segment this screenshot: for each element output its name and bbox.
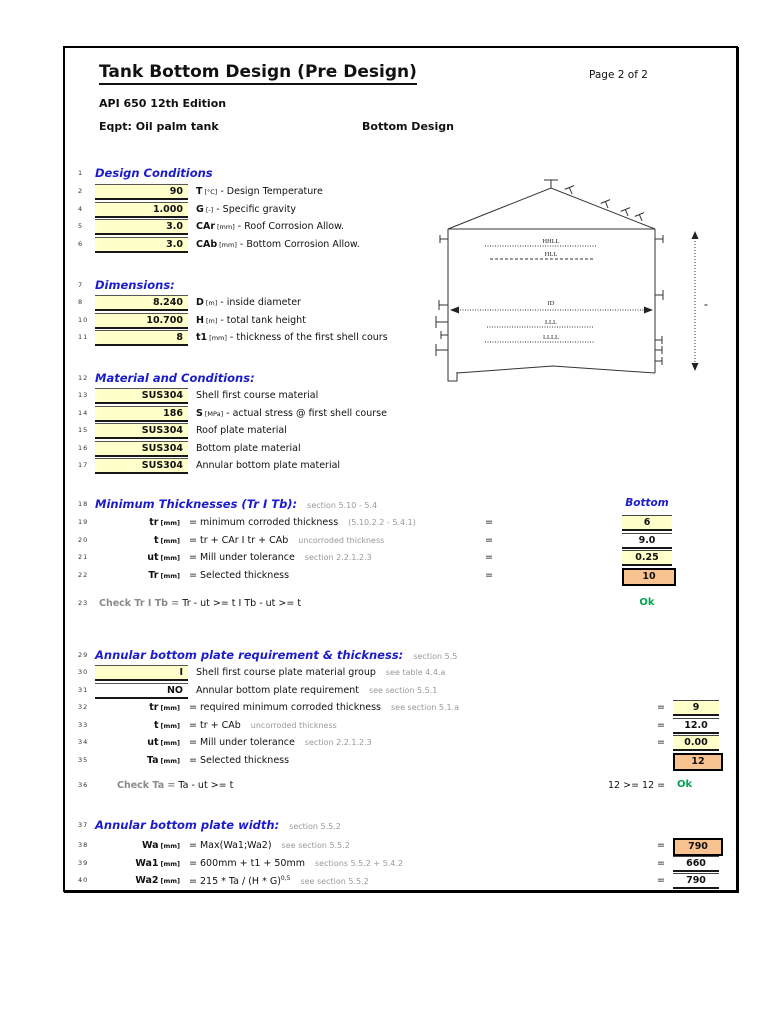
equation-text: = Selected thickness [189, 755, 289, 766]
line-number: 18 [78, 500, 88, 508]
equation-text: = minimum corroded thickness(5.10.2.2 - … [189, 517, 416, 528]
input-cell-inside-diameter[interactable]: 8.240 [95, 295, 188, 311]
page-frame: Tank Bottom Design (Pre Design) Page 2 o… [63, 46, 738, 892]
unit-label: [mm] [161, 757, 181, 765]
section-header-min-thickness: 18 Minimum Thicknesses (Tr I Tb):section… [65, 497, 736, 514]
reference-note: see section 5.1.a [391, 703, 459, 712]
equals-sign: = [657, 737, 665, 748]
equals-sign: = [485, 535, 493, 546]
line-number: 1 [78, 169, 83, 177]
line-number: 30 [78, 668, 88, 676]
table-row: 15 SUS304 Roof plate material [65, 423, 736, 440]
shell-nozzle-icon [439, 300, 448, 310]
reference-note: see section 5.5.2 [282, 841, 350, 850]
variable-name: Wa[mm] [65, 840, 183, 851]
line-number: 7 [78, 281, 83, 289]
section-heading: Material and Conditions: [95, 371, 255, 385]
description-text: - Specific gravity [216, 204, 296, 215]
description-text: - thickness of the first shell cours [230, 332, 388, 343]
shell-nozzle-icon [655, 235, 663, 243]
input-cell-material-group[interactable]: I [95, 665, 188, 681]
unit-label: [mm] [161, 537, 181, 545]
check-row: 23 Check Tr I Tb = Tr - ut >= t I Tb - u… [65, 596, 736, 613]
input-cell-bottom-corrosion[interactable]: 3.0 [95, 237, 188, 253]
arrowhead [692, 363, 699, 371]
diagram-label-hhll: HHLL [542, 238, 559, 245]
reference-note: see section 5.5.1 [369, 686, 437, 695]
tank-bottom-plate [457, 366, 655, 373]
reference-note: section 2.2.1.2.3 [305, 738, 372, 747]
calc-row: 38 Wa[mm] = Max(Wa1;Wa2)see section 5.5.… [65, 838, 736, 855]
unit-label: [mm] [161, 704, 181, 712]
unit-label: [MPa] [205, 410, 223, 418]
equation-text: = 600mm + t1 + 50mmsections 5.5.2 + 5.4.… [189, 858, 403, 869]
result-cell-t-annular: 12.0 [673, 718, 719, 734]
line-number: 17 [78, 461, 88, 469]
result-cell-t: 9.0 [622, 533, 672, 549]
line-number: 36 [78, 781, 88, 789]
variable-name: t[mm] [65, 720, 183, 731]
status-ok: Ok [677, 779, 692, 790]
section-header-annular-req: 29 Annular bottom plate requirement & th… [65, 648, 736, 665]
comparison-text: 12 >= 12 = [608, 780, 665, 791]
arrowhead [692, 231, 699, 239]
table-row: 14 186 S[MPa]- actual stress @ first she… [65, 406, 736, 423]
variable-name: Tr[mm] [65, 570, 183, 581]
selected-thickness-cell[interactable]: 10 [622, 568, 676, 586]
equipment-label: Eqpt: Oil palm tank [99, 120, 219, 133]
input-cell-shell-material[interactable]: SUS304 [95, 388, 188, 404]
line-number: 13 [78, 391, 88, 399]
input-cell-design-temperature[interactable]: 90 [95, 184, 188, 200]
calc-row: 33 t[mm] = tr + CAbuncorroded thickness … [65, 718, 736, 735]
shell-nozzle-icon [440, 235, 448, 243]
section-heading: Annular bottom plate requirement & thick… [95, 648, 457, 662]
variable-name: Ta[mm] [65, 755, 183, 766]
diagram-label-id: ID [548, 300, 555, 307]
row-description: CAr[mm]- Roof Corrosion Allow. [196, 221, 344, 232]
arrowhead [644, 307, 653, 314]
line-number: 15 [78, 426, 88, 434]
result-cell-wa1: 660 [673, 856, 719, 872]
result-cell-ut-annular: 0.00 [673, 735, 719, 751]
row-description: CAb[mm]- Bottom Corrosion Allow. [196, 239, 360, 250]
reference-note: see section 5.5.2 [300, 877, 368, 886]
equation-text: = Selected thickness [189, 570, 289, 581]
status-ok: Ok [622, 597, 672, 608]
variable-name: Wa2[mm] [65, 875, 183, 886]
shell-nozzle-icon [655, 346, 662, 354]
equation-text: = tr + CAr I tr + CAbuncorroded thicknes… [189, 535, 384, 546]
input-cell-roof-corrosion[interactable]: 3.0 [95, 219, 188, 235]
result-cell-annular-required: NO [95, 683, 188, 699]
calc-row: 20 t[mm] = tr + CAr I tr + CAbuncorroded… [65, 533, 736, 550]
calc-row: 35 Ta[mm] = Selected thickness 12 [65, 753, 736, 770]
variable-name: tr[mm] [65, 702, 183, 713]
selected-thickness-cell-annular[interactable]: 12 [673, 753, 723, 771]
row-description: Shell first course plate material groups… [196, 667, 445, 678]
variable-name: CAr [196, 221, 215, 232]
unit-label: [mm] [161, 860, 181, 868]
result-cell-tr-annular: 9 [673, 700, 719, 716]
variable-name: ut[mm] [65, 552, 183, 563]
arrowhead [450, 307, 459, 314]
row-description: Bottom plate material [196, 443, 301, 454]
shell-nozzle-icon [436, 344, 448, 356]
standard-label: API 650 12th Edition [99, 97, 226, 110]
variable-name: tr[mm] [65, 517, 183, 528]
diagram-label-hll: HLL [545, 251, 558, 258]
line-number: 8 [78, 298, 83, 306]
shell-nozzle-icon [436, 316, 448, 328]
row-description: Shell first course material [196, 390, 318, 401]
line-number: 12 [78, 374, 88, 382]
column-header-bottom: Bottom [622, 497, 672, 509]
section-note: section 5.5.2 [289, 822, 341, 831]
description-text: - Roof Corrosion Allow. [238, 221, 344, 232]
line-number: 31 [78, 686, 88, 694]
page-title: Tank Bottom Design (Pre Design) [99, 62, 417, 85]
shell-nozzle-icon [655, 336, 662, 344]
calc-row: 40 Wa2[mm] = 215 * Ta / (H * G)0,5see se… [65, 873, 736, 890]
unit-label: [°C] [204, 188, 217, 196]
diagram-label-lll: LLL [545, 319, 557, 326]
shell-nozzle-icon [655, 290, 663, 300]
description-text: - actual stress @ first shell course [226, 408, 387, 419]
input-cell-actual-stress[interactable]: 186 [95, 406, 188, 422]
table-row: 13 SUS304 Shell first course material [65, 388, 736, 405]
line-number: 37 [78, 821, 88, 829]
row-description: Roof plate material [196, 425, 287, 436]
variable-name: CAb [196, 239, 217, 250]
description-text: - Design Temperature [220, 186, 322, 197]
section-heading: Dimensions: [95, 278, 175, 292]
equals-sign: = [657, 702, 665, 713]
section-note: section 5.5 [413, 652, 457, 661]
variable-name: D [196, 297, 204, 308]
calc-row: 39 Wa1[mm] = 600mm + t1 + 50mmsections 5… [65, 856, 736, 873]
unit-label: [mm] [161, 554, 181, 562]
page-number: Page 2 of 2 [589, 69, 648, 81]
line-number: 2 [78, 187, 83, 195]
equals-sign: = [657, 840, 665, 851]
row-description: D[m]- inside diameter [196, 297, 301, 308]
description-text: Annular bottom plate material [196, 460, 340, 471]
result-cell-ut: 0.25 [622, 550, 672, 566]
section-heading: Minimum Thicknesses (Tr I Tb):section 5.… [95, 497, 377, 511]
sheet-subtitle: Bottom Design [362, 120, 454, 133]
result-cell-wa2: 790 [673, 873, 719, 889]
row-description: G[-]- Specific gravity [196, 204, 296, 215]
unit-label: [mm] [161, 739, 181, 747]
variable-name: t[mm] [65, 535, 183, 546]
equals-sign: = [485, 552, 493, 563]
variable-name: H [196, 315, 204, 326]
check-formula: Check Ta = Ta - ut >= t [117, 780, 233, 791]
equation-text: = Mill under tolerancesection 2.2.1.2.3 [189, 737, 372, 748]
roof-nozzle-icon [544, 180, 558, 188]
unit-label: [m] [206, 317, 217, 325]
result-cell-wa[interactable]: 790 [673, 838, 723, 856]
table-row: 16 SUS304 Bottom plate material [65, 441, 736, 458]
section-note: section 5.10 - 5.4 [307, 501, 377, 510]
equation-text: = Max(Wa1;Wa2)see section 5.5.2 [189, 840, 350, 851]
unit-label: [-] [206, 206, 213, 214]
table-row: 30 I Shell first course plate material g… [65, 665, 736, 682]
table-row: 31 NO Annular bottom plate requirementse… [65, 683, 736, 700]
unit-label: [mm] [219, 241, 237, 249]
description-text: Roof plate material [196, 425, 287, 436]
equals-sign: = [657, 858, 665, 869]
line-number: 14 [78, 409, 88, 417]
shell-nozzle-icon [441, 331, 448, 339]
check-formula: Check Tr I Tb = Tr - ut >= t I Tb - ut >… [99, 598, 301, 609]
section-heading: Annular bottom plate width:section 5.5.2 [95, 818, 341, 832]
tank-bottom-notch [448, 367, 457, 381]
unit-label: [mm] [161, 572, 181, 580]
equals-sign: = [485, 517, 493, 528]
reference-note: see table 4.4.a [386, 668, 446, 677]
description-text: - inside diameter [220, 297, 301, 308]
equation-text: = tr + CAbuncorroded thickness [189, 720, 337, 731]
equation-text: = required minimum corroded thicknesssee… [189, 702, 459, 713]
unit-label: [mm] [161, 519, 181, 527]
row-description: S[MPa]- actual stress @ first shell cour… [196, 408, 387, 419]
check-row: 36 Check Ta = Ta - ut >= t 12 >= 12 = Ok [65, 778, 736, 795]
tank-roof [448, 188, 655, 229]
input-cell-roof-material[interactable]: SUS304 [95, 423, 188, 439]
description-text: Shell first course material [196, 390, 318, 401]
calc-row: 21 ut[mm] = Mill under tolerancesection … [65, 550, 736, 567]
row-description: Annular bottom plate requirementsee sect… [196, 685, 437, 696]
line-number: 23 [78, 599, 88, 607]
variable-name: T [196, 186, 202, 197]
reference-note: uncorroded thickness [251, 721, 337, 730]
input-cell-tank-height[interactable]: 10.700 [95, 313, 188, 329]
input-cell-annular-material[interactable]: SUS304 [95, 458, 188, 474]
calc-row: 19 tr[mm] = minimum corroded thickness(5… [65, 515, 736, 532]
equals-sign: = [657, 875, 665, 886]
calc-row: 22 Tr[mm] = Selected thickness = 10 [65, 568, 736, 585]
line-number: 10 [78, 316, 88, 324]
equation-text: = 215 * Ta / (H * G)0,5see section 5.5.2 [189, 875, 369, 887]
section-heading: Design Conditions [95, 166, 213, 180]
reference-note: (5.10.2.2 - 5.4.1) [348, 518, 416, 527]
row-description: T[°C]- Design Temperature [196, 186, 323, 197]
result-cell-tr: 6 [622, 515, 672, 531]
reference-note: sections 5.5.2 + 5.4.2 [315, 859, 403, 868]
variable-name: ut[mm] [65, 737, 183, 748]
description-text: - total tank height [220, 315, 306, 326]
unit-label: [mm] [161, 722, 181, 730]
unit-label: [mm] [209, 334, 227, 342]
section-header-annular-width: 37 Annular bottom plate width:section 5.… [65, 818, 736, 835]
equation-text: = Mill under tolerancesection 2.2.1.2.3 [189, 552, 372, 563]
description-text: - Bottom Corrosion Allow. [240, 239, 360, 250]
row-description: Annular bottom plate material [196, 460, 340, 471]
calc-row: 34 ut[mm] = Mill under tolerancesection … [65, 735, 736, 752]
line-number: 16 [78, 444, 88, 452]
table-row: 17 SUS304 Annular bottom plate material [65, 458, 736, 475]
input-cell-bottom-material[interactable]: SUS304 [95, 441, 188, 457]
reference-note: uncorroded thickness [298, 536, 384, 545]
unit-label: [mm] [161, 877, 181, 885]
unit-label: [mm] [217, 223, 235, 231]
input-cell-specific-gravity[interactable]: 1.000 [95, 202, 188, 218]
input-cell-shell-thickness[interactable]: 8 [95, 330, 188, 346]
description-text: Bottom plate material [196, 443, 301, 454]
row-description: H[m]- total tank height [196, 315, 306, 326]
calc-row: 32 tr[mm] = required minimum corroded th… [65, 700, 736, 717]
unit-label: [mm] [161, 842, 181, 850]
variable-name: t1 [196, 332, 207, 343]
row-description: t1[mm]- thickness of the first shell cou… [196, 332, 388, 343]
diagram-height-mark: = [704, 302, 708, 309]
line-number: 29 [78, 651, 88, 659]
equals-sign: = [485, 570, 493, 581]
reference-note: section 2.2.1.2.3 [305, 553, 372, 562]
shell-nozzle-icon [655, 357, 662, 365]
unit-label: [m] [206, 299, 217, 307]
equals-sign: = [657, 720, 665, 731]
line-number: 6 [78, 240, 83, 248]
line-number: 11 [78, 333, 88, 341]
tank-diagram: HHLL HLL ID LLL LLLL = [417, 167, 717, 382]
variable-name: G [196, 204, 204, 215]
variable-name: Wa1[mm] [65, 858, 183, 869]
variable-name: S [196, 408, 203, 419]
line-number: 4 [78, 205, 83, 213]
line-number: 5 [78, 222, 83, 230]
diagram-label-llll: LLLL [543, 334, 559, 341]
